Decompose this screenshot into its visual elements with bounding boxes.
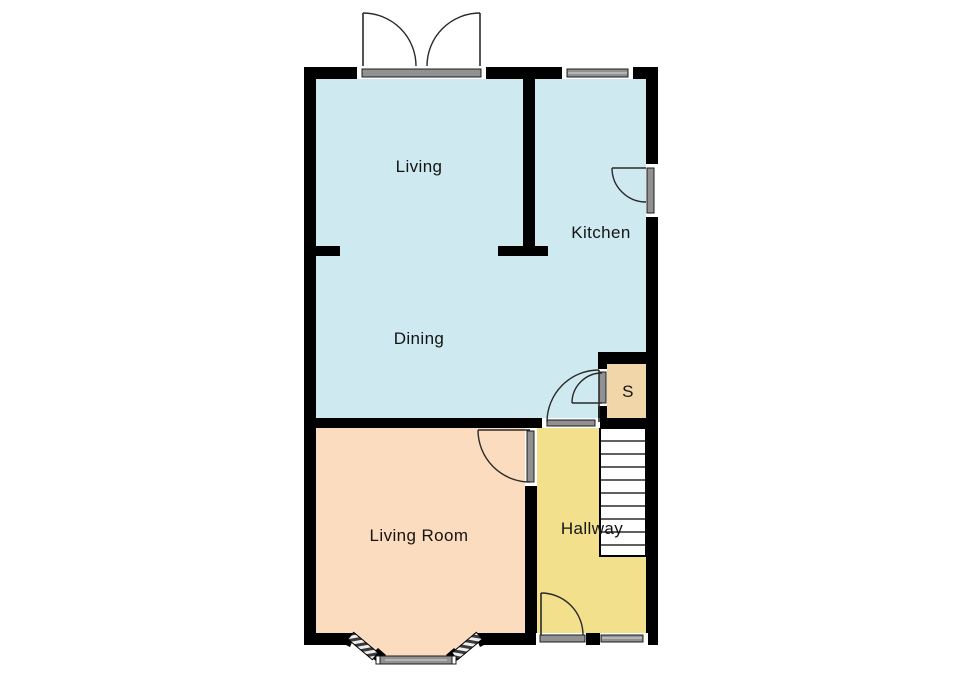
wall-storage-bottom: [598, 418, 658, 428]
front-door-threshold: [540, 635, 585, 642]
floorplan-canvas: [0, 0, 960, 679]
room-label-kitchen: Kitchen: [571, 223, 631, 243]
room-label-dining: Dining: [394, 329, 445, 349]
floorplan: Living Kitchen Dining S Living Room Hall…: [0, 0, 960, 679]
wall-bottom-stub: [586, 633, 600, 645]
living-room-door-frame: [527, 431, 534, 482]
wall-bottom-mid: [482, 633, 536, 645]
wall-bottom-right: [648, 633, 658, 645]
wall-livingroom-hallway: [525, 484, 537, 633]
wall-bottom-left: [304, 633, 348, 645]
wall-storage-top: [598, 352, 658, 364]
room-label-hallway: Hallway: [561, 519, 623, 539]
wall-living-kitchen: [523, 79, 535, 247]
bay-jamb-right: [452, 656, 456, 664]
wall-left: [304, 67, 316, 645]
bay-jamb-left: [376, 656, 380, 664]
room-label-storage: S: [622, 382, 634, 402]
french-door-left-swing: [363, 13, 416, 66]
french-door-threshold: [362, 69, 481, 77]
storage-door-frame: [599, 372, 606, 403]
kitchen-door-frame: [647, 168, 654, 213]
wall-dining-livingroom: [304, 418, 542, 428]
wall-living-dining-stub: [304, 246, 340, 256]
room-label-living: Living: [396, 157, 443, 177]
living-dining-kitchen-floor: [316, 79, 646, 418]
room-label-living-room: Living Room: [370, 526, 469, 546]
french-door-right-swing: [427, 13, 480, 66]
french-doors: [363, 13, 480, 66]
wall-living-kitchen-tcap: [498, 246, 548, 256]
hallway-door-threshold: [547, 420, 595, 426]
